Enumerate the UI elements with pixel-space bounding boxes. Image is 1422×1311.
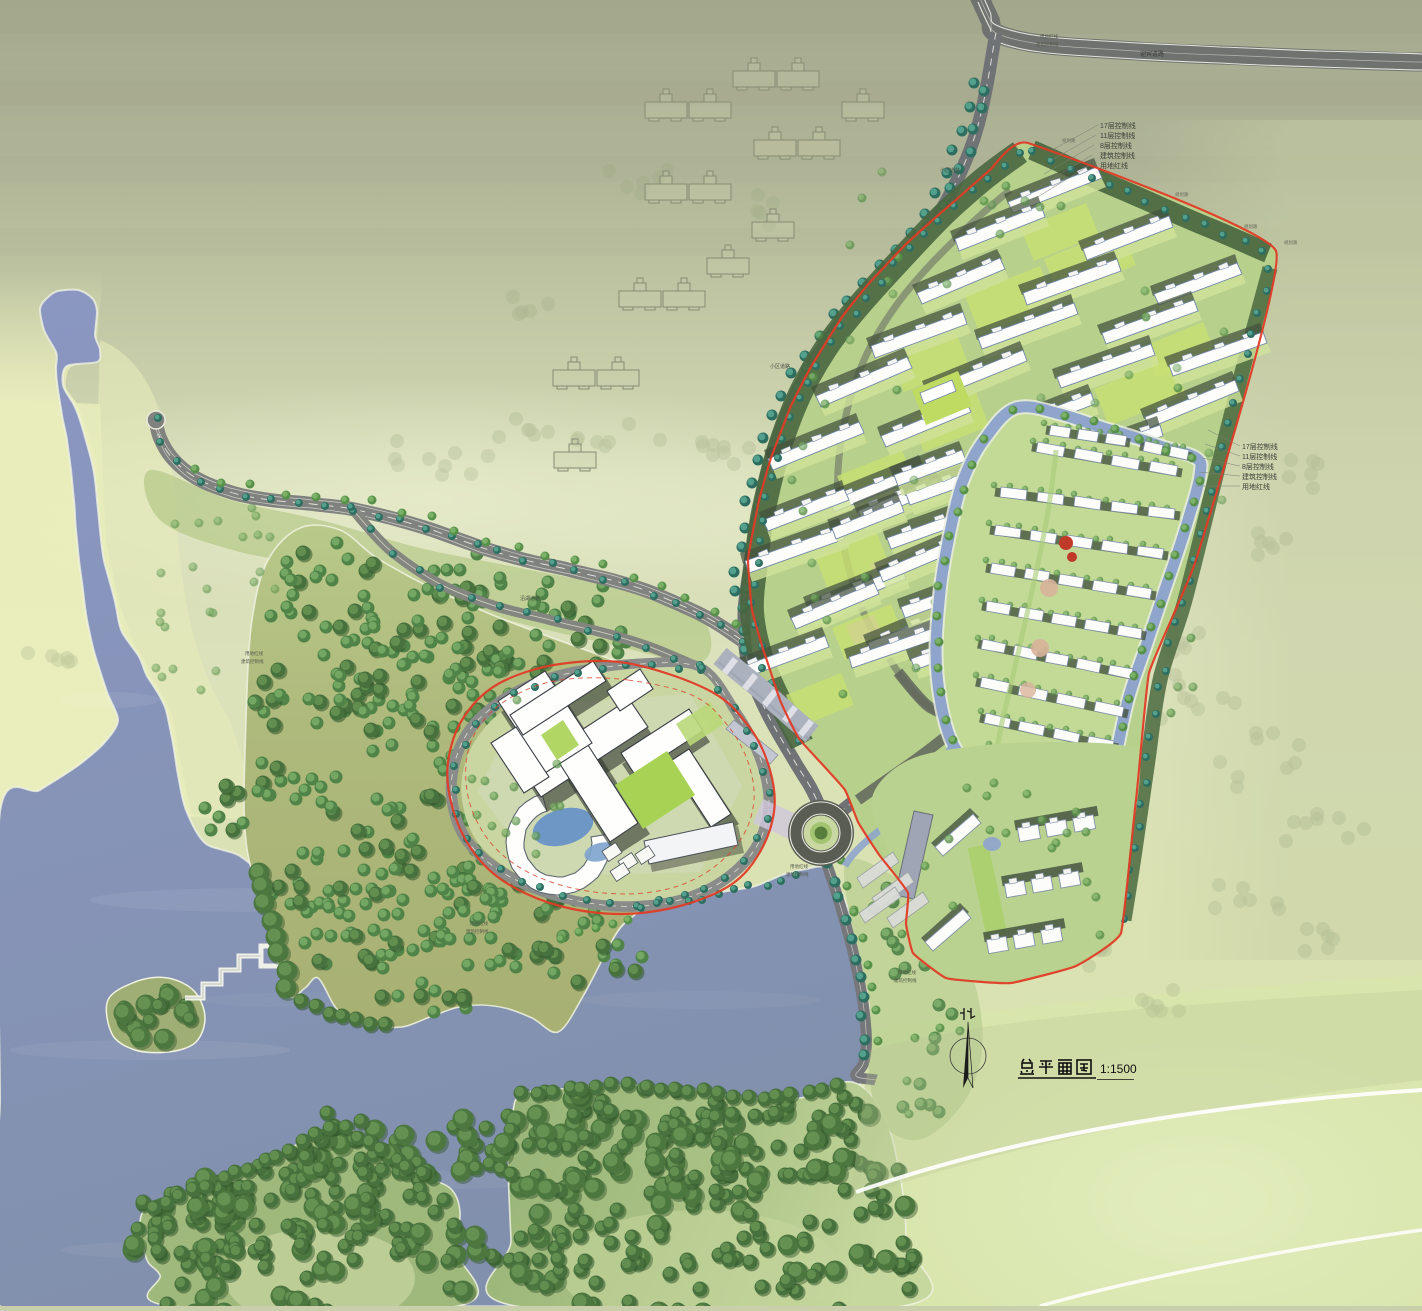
svg-text:建筑控制线: 建筑控制线	[786, 871, 809, 878]
svg-text:11层控制线: 11层控制线	[1242, 452, 1277, 461]
svg-text:17层控制线: 17层控制线	[1242, 442, 1278, 451]
svg-text:规划路: 规划路	[1175, 191, 1189, 198]
svg-text:规划路: 规划路	[1244, 223, 1258, 230]
svg-text:规划路: 规划路	[1284, 239, 1298, 246]
svg-text:用地红线: 用地红线	[1242, 482, 1270, 491]
svg-text:建筑控制线: 建筑控制线	[1242, 472, 1277, 481]
svg-text:8层控制线: 8层控制线	[1100, 141, 1132, 150]
svg-text:用地红线: 用地红线	[898, 969, 916, 976]
svg-text:用地红线: 用地红线	[1040, 33, 1058, 40]
svg-text:建筑控制线: 建筑控制线	[241, 658, 264, 665]
svg-text:建筑控制线: 建筑控制线	[1036, 41, 1059, 48]
svg-text:建筑控制线: 建筑控制线	[466, 928, 489, 935]
svg-text:17层控制线: 17层控制线	[1100, 121, 1136, 130]
svg-text:小区道路: 小区道路	[940, 167, 960, 174]
svg-text:用地红线: 用地红线	[790, 863, 808, 870]
svg-text:11层控制线: 11层控制线	[1100, 131, 1135, 140]
svg-text:用地红线: 用地红线	[1100, 161, 1128, 170]
svg-text:小区道路: 小区道路	[770, 363, 790, 370]
svg-text:1:1500: 1:1500	[1100, 1062, 1137, 1076]
svg-text:8层控制线: 8层控制线	[1242, 462, 1274, 471]
svg-text:用地红线: 用地红线	[245, 650, 263, 657]
svg-text:建筑控制线: 建筑控制线	[894, 977, 917, 984]
svg-text:规划路: 规划路	[1062, 137, 1076, 144]
svg-text:沿湖道路: 沿湖道路	[520, 595, 540, 602]
svg-text:用地红线: 用地红线	[470, 920, 488, 927]
svg-text:建筑控制线: 建筑控制线	[1100, 151, 1135, 160]
svg-text:迎宾道路: 迎宾道路	[1140, 50, 1164, 58]
